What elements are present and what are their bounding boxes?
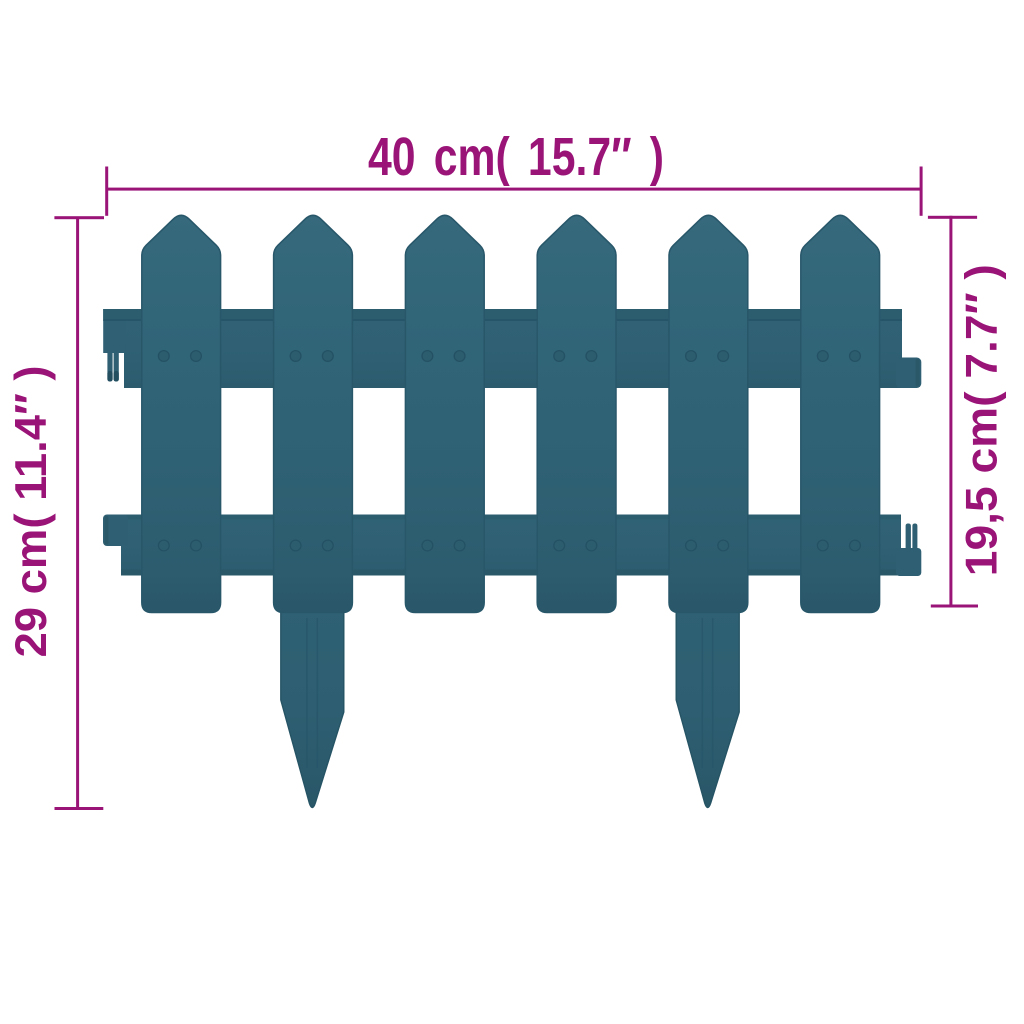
svg-text:40 cm( 15.7″ ): 40 cm( 15.7″ ) <box>368 127 664 187</box>
svg-text:29 cm( 11.4″ ): 29 cm( 11.4″ ) <box>7 366 56 658</box>
svg-text:19,5 cm( 7.7″ ): 19,5 cm( 7.7″ ) <box>958 264 1007 576</box>
